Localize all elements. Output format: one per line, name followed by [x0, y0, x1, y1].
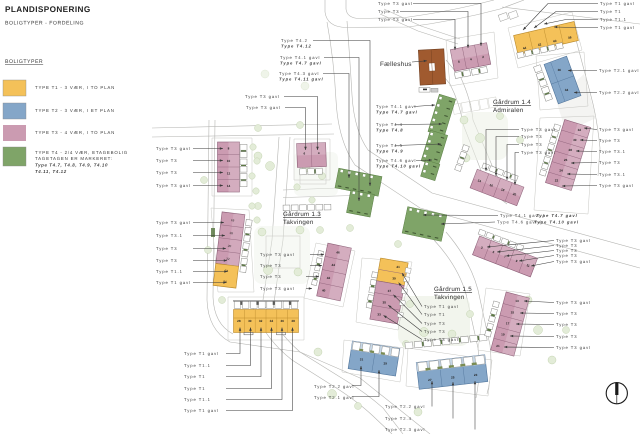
- svg-text:Type T1: Type T1: [184, 386, 206, 391]
- svg-text:31: 31: [360, 358, 364, 362]
- svg-text:Type T3: Type T3: [156, 246, 178, 251]
- svg-text:Type T3 gavl: Type T3 gavl: [556, 300, 591, 305]
- svg-text:23: 23: [474, 373, 478, 377]
- svg-text:Type T4.10 gavl: Type T4.10 gavl: [534, 220, 579, 225]
- svg-text:Type T4.7 gavl: Type T4.7 gavl: [280, 61, 322, 66]
- svg-text:Type T3: Type T3: [599, 160, 621, 165]
- svg-text:30: 30: [248, 319, 252, 323]
- svg-text:Type T3 gavl: Type T3 gavl: [246, 105, 281, 110]
- svg-text:32: 32: [578, 128, 582, 132]
- svg-text:Type T4.11 gavl: Type T4.11 gavl: [279, 77, 324, 82]
- svg-text:Type T2.3 gavl: Type T2.3 gavl: [385, 427, 425, 432]
- svg-text:Takvingen: Takvingen: [434, 294, 465, 301]
- svg-text:14: 14: [227, 184, 231, 188]
- svg-text:Type T3 gavl: Type T3 gavl: [378, 17, 413, 22]
- svg-text:Type T3 gavl: Type T3 gavl: [156, 146, 191, 151]
- svg-text:Type T3: Type T3: [599, 138, 621, 143]
- svg-text:T4.11, T4.12: T4.11, T4.12: [35, 169, 67, 174]
- svg-text:25: 25: [451, 375, 455, 379]
- svg-text:Type T4.9: Type T4.9: [376, 149, 404, 154]
- svg-text:19: 19: [501, 333, 505, 337]
- svg-text:Type T1: Type T1: [600, 9, 622, 14]
- svg-text:Type T1 gavl: Type T1 gavl: [424, 304, 459, 309]
- svg-text:Type T3 gavl: Type T3 gavl: [521, 127, 556, 132]
- svg-text:Type T3 gavl: Type T3 gavl: [521, 150, 556, 155]
- svg-text:39: 39: [392, 277, 396, 281]
- svg-text:Type T4.1 gavl: Type T4.1 gavl: [280, 55, 320, 60]
- svg-text:17: 17: [506, 321, 510, 325]
- svg-text:33: 33: [377, 313, 381, 317]
- svg-text:Type T3: Type T3: [521, 142, 543, 147]
- svg-text:Fælleshus: Fælleshus: [380, 61, 412, 68]
- svg-text:37: 37: [388, 289, 392, 293]
- svg-text:Type T2.1 gavl: Type T2.1 gavl: [314, 395, 354, 400]
- svg-text:Type T4.6 gavl: Type T4.6 gavl: [376, 158, 416, 163]
- svg-text:42: 42: [327, 276, 331, 280]
- svg-text:TYPE T3 - 4 VÆR, I TO PLAN: TYPE T3 - 4 VÆR, I TO PLAN: [35, 130, 115, 135]
- svg-text:Gårdrum 1.5: Gårdrum 1.5: [434, 286, 472, 293]
- svg-text:36: 36: [280, 319, 284, 323]
- svg-text:Type T3 gavl: Type T3 gavl: [556, 345, 591, 350]
- svg-text:Type T3 gavl: Type T3 gavl: [424, 337, 459, 342]
- svg-text:Type T3 gavl: Type T3 gavl: [378, 1, 413, 6]
- svg-text:Takvingen: Takvingen: [283, 219, 314, 226]
- svg-text:TYPE T4 - 2/4 VÆR, ETAGEBOLIG: TYPE T4 - 2/4 VÆR, ETAGEBOLIG: [35, 150, 128, 155]
- svg-text:35: 35: [383, 300, 387, 304]
- svg-text:Type T1 gavl: Type T1 gavl: [600, 1, 635, 6]
- svg-text:Type T4.10 gavl: Type T4.10 gavl: [376, 164, 421, 169]
- svg-text:Type T1.1: Type T1.1: [156, 269, 183, 274]
- svg-text:Type T2.2 gavl: Type T2.2 gavl: [385, 404, 425, 409]
- svg-text:Type T4.7 gavl: Type T4.7 gavl: [376, 110, 418, 115]
- svg-text:Admiralen: Admiralen: [493, 107, 524, 114]
- svg-text:Type T4.1 gavl: Type T4.1 gavl: [376, 104, 416, 109]
- svg-text:Type T3.1: Type T3.1: [599, 172, 626, 177]
- svg-text:8: 8: [228, 146, 230, 150]
- svg-text:28: 28: [569, 148, 573, 152]
- svg-text:PLANDISPONERING: PLANDISPONERING: [5, 5, 91, 14]
- svg-text:Type T3: Type T3: [556, 334, 578, 339]
- svg-text:Type T1 gavl: Type T1 gavl: [184, 351, 219, 356]
- svg-text:Type T1.1: Type T1.1: [184, 363, 211, 368]
- svg-text:Type T1 gavl: Type T1 gavl: [184, 408, 219, 413]
- svg-text:BOLIGTYPER: BOLIGTYPER: [5, 59, 43, 65]
- svg-text:12: 12: [227, 171, 231, 175]
- svg-text:13: 13: [515, 299, 519, 303]
- svg-text:Type T4.12: Type T4.12: [281, 44, 312, 49]
- svg-text:Type T3: Type T3: [260, 274, 282, 279]
- svg-text:Type T3 gavl: Type T3 gavl: [156, 183, 191, 188]
- svg-text:46: 46: [336, 250, 340, 254]
- svg-text:Type T1 gavl: Type T1 gavl: [156, 280, 191, 285]
- svg-text:Type T3 gavl: Type T3 gavl: [599, 183, 634, 188]
- svg-text:Type T3.1: Type T3.1: [599, 149, 626, 154]
- svg-text:Type T3: Type T3: [556, 253, 578, 258]
- svg-text:Type T3: Type T3: [424, 321, 446, 326]
- svg-text:28: 28: [237, 319, 241, 323]
- svg-text:Type T3: Type T3: [556, 311, 578, 316]
- svg-text:22: 22: [555, 178, 559, 182]
- svg-text:Type T3 gavl: Type T3 gavl: [245, 94, 280, 99]
- svg-text:Type T3 gavl: Type T3 gavl: [556, 259, 591, 264]
- svg-text:Type T4.2: Type T4.2: [281, 38, 308, 43]
- svg-text:10: 10: [227, 159, 231, 163]
- svg-text:BOLIGTYPER - FORDELING: BOLIGTYPER - FORDELING: [5, 21, 84, 27]
- svg-text:24: 24: [559, 168, 563, 172]
- svg-text:Type T2.2 gavl: Type T2.2 gavl: [599, 90, 639, 95]
- svg-text:40: 40: [322, 289, 326, 293]
- svg-text:34: 34: [270, 319, 274, 323]
- svg-text:Type T2.2 gavl: Type T2.2 gavl: [314, 384, 354, 389]
- svg-text:Type T3: Type T3: [378, 9, 400, 14]
- svg-text:TAGETAGEN ER MARKERET:: TAGETAGEN ER MARKERET:: [35, 156, 113, 161]
- svg-text:Type T2.1 gavl: Type T2.1 gavl: [599, 68, 639, 73]
- svg-text:TYPE T1 - 3 VÆR, I TO PLAN: TYPE T1 - 3 VÆR, I TO PLAN: [35, 85, 115, 90]
- svg-text:Gårdrum 1.4: Gårdrum 1.4: [493, 99, 531, 106]
- svg-text:Type T3: Type T3: [156, 158, 178, 163]
- svg-text:Gårdrum 1.3: Gårdrum 1.3: [283, 211, 321, 218]
- svg-text:36: 36: [558, 68, 562, 72]
- svg-text:Type T3: Type T3: [556, 322, 578, 327]
- svg-text:Type T4.7 gavl: Type T4.7 gavl: [536, 213, 578, 218]
- svg-text:Type T1: Type T1: [184, 374, 206, 379]
- svg-text:Type T3: Type T3: [424, 329, 446, 334]
- svg-text:Type T3 gavl: Type T3 gavl: [260, 252, 295, 257]
- svg-text:Type T3: Type T3: [156, 170, 178, 175]
- svg-text:34: 34: [565, 88, 569, 92]
- svg-text:38: 38: [291, 319, 295, 323]
- svg-text:26: 26: [564, 158, 568, 162]
- svg-text:Type T3 gavl: Type T3 gavl: [156, 220, 191, 225]
- svg-text:41: 41: [396, 265, 400, 269]
- svg-text:Type T1 gavl: Type T1 gavl: [600, 25, 635, 30]
- svg-text:Type T3: Type T3: [521, 134, 543, 139]
- svg-text:Type T3 gavl: Type T3 gavl: [260, 286, 295, 291]
- svg-text:Type T1.1: Type T1.1: [600, 17, 627, 22]
- svg-text:Type T1: Type T1: [424, 312, 446, 317]
- svg-text:Type T2.4: Type T2.4: [385, 416, 412, 421]
- svg-text:Type T3 gavl: Type T3 gavl: [599, 127, 634, 132]
- svg-text:44: 44: [332, 263, 336, 267]
- svg-text:21: 21: [496, 344, 500, 348]
- svg-text:Type T3: Type T3: [156, 258, 178, 263]
- svg-text:Type T3: Type T3: [260, 263, 282, 268]
- svg-text:Type T4.7, T4.8, T4.9, T4.10: Type T4.7, T4.8, T4.9, T4.10: [35, 163, 108, 168]
- svg-text:27: 27: [428, 378, 432, 382]
- svg-text:Type T4.8: Type T4.8: [376, 128, 404, 133]
- svg-text:Type T4.3 gavl: Type T4.3 gavl: [279, 71, 319, 76]
- svg-text:32: 32: [259, 319, 263, 323]
- svg-text:Type T1.1: Type T1.1: [184, 397, 211, 402]
- svg-text:TYPE T2 - 3 VÆR, I ET PLAN: TYPE T2 - 3 VÆR, I ET PLAN: [35, 108, 115, 113]
- svg-text:30: 30: [573, 138, 577, 142]
- svg-text:29: 29: [383, 361, 387, 365]
- svg-text:Type T3.1: Type T3.1: [156, 233, 183, 238]
- svg-text:15: 15: [511, 310, 515, 314]
